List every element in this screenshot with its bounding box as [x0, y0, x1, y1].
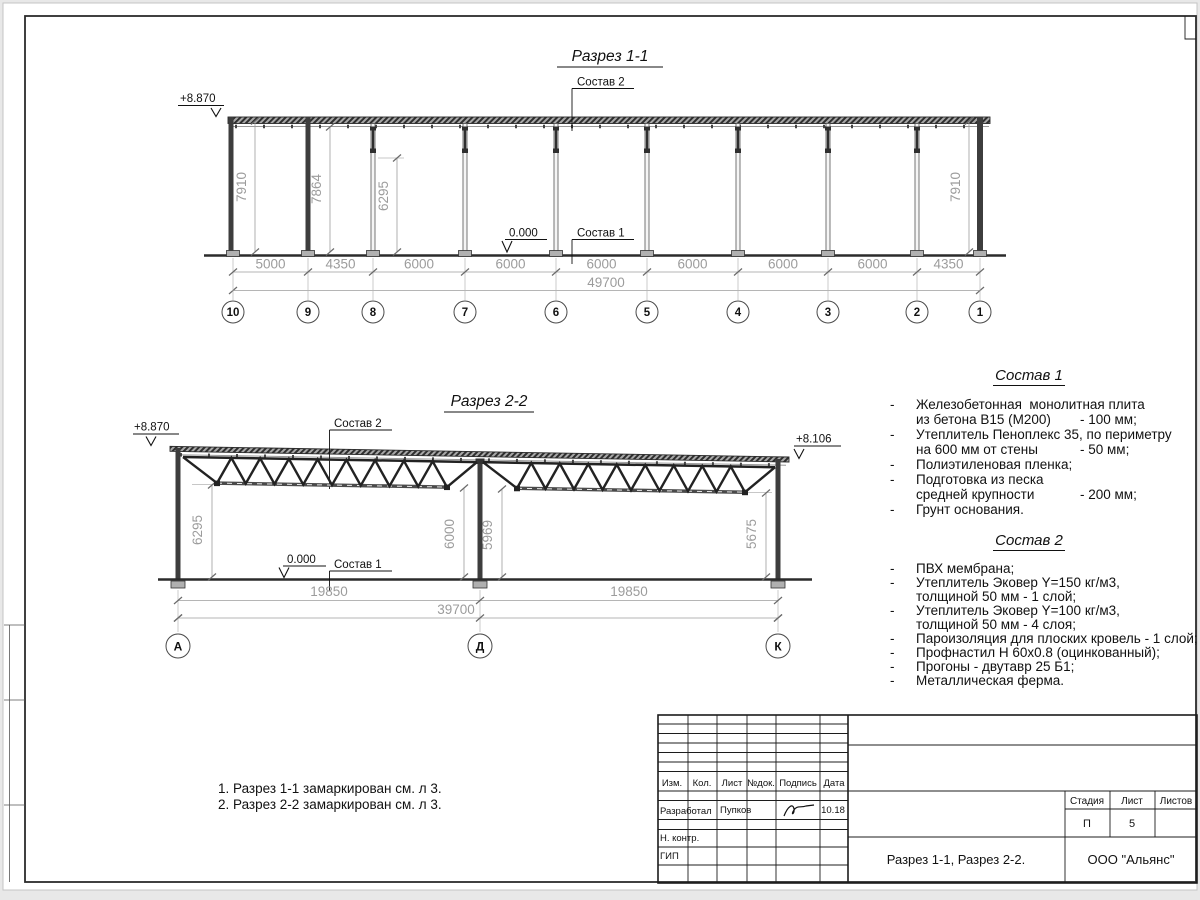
- dimension-text: 6000: [857, 257, 887, 272]
- foundation-pad: [171, 581, 185, 588]
- axis-label: 3: [825, 307, 831, 319]
- spec-text: Грунт основания.: [916, 502, 1024, 517]
- spec-text: Утеплитель Эковер Y=100 кг/м3,: [916, 604, 1120, 618]
- spec-text: ПВХ мембрана;: [916, 562, 1014, 576]
- spec-list-row: толщиной 50 мм - 4 слоя;: [870, 618, 1188, 632]
- connector-pad: [735, 127, 741, 131]
- column-top-connector: [372, 130, 374, 149]
- column-axis-10: [229, 117, 234, 255]
- spec-list-row: - Утеплитель Пеноплекс 35, по периметру: [870, 427, 1188, 442]
- elevation-value: +8.870: [134, 422, 170, 434]
- connector-pad: [644, 127, 650, 131]
- axis-label: 8: [370, 307, 377, 319]
- column-top-connector: [737, 130, 739, 149]
- connector-pad: [825, 149, 831, 154]
- tb-sheet-value: 5: [1129, 818, 1135, 830]
- sostav2-label: Состав 2: [334, 418, 382, 430]
- foundation-pad: [550, 251, 563, 257]
- tb-stage-label: Стадия: [1070, 796, 1104, 807]
- sostav1-label: Состав 1: [577, 228, 625, 240]
- spec-sostav-1: Состав 1 - Железобетонная монолитная пли…: [870, 367, 1188, 517]
- bullet: -: [890, 604, 895, 618]
- spec-text: Железобетонная монолитная плита: [916, 397, 1145, 412]
- column-axis-1: [977, 117, 983, 255]
- column-axis-a: [176, 448, 181, 579]
- axis-label: А: [174, 640, 183, 654]
- bullet: -: [890, 427, 895, 442]
- axis-label: К: [774, 640, 782, 654]
- tb-header-podpis: Подпись: [779, 778, 817, 789]
- dim-19850-right: 19850: [610, 584, 648, 599]
- spec-value: - 50 мм;: [1080, 442, 1129, 457]
- svg-text:6295: 6295: [190, 515, 205, 545]
- spec-list-row: - Металлическая ферма.: [870, 674, 1188, 688]
- column-top-connector: [555, 130, 557, 149]
- spec-value: - 100 мм;: [1080, 412, 1137, 427]
- connector-pad: [825, 127, 831, 131]
- foundation-pad: [822, 251, 835, 257]
- foundation-pad: [641, 251, 654, 257]
- tb-sheet-label: Лист: [1121, 796, 1143, 807]
- bullet: -: [890, 562, 895, 576]
- spec-text: Металлическая ферма.: [916, 674, 1064, 688]
- svg-text:6000: 6000: [442, 519, 457, 549]
- spec-text: средней крупности: [916, 487, 1034, 502]
- spec-text: Утеплитель Пеноплекс 35, по периметру: [916, 427, 1172, 442]
- connector-pad: [462, 149, 468, 154]
- spec-list-row: - Подготовка из песка: [870, 472, 1188, 487]
- spec-text: Утеплитель Эковер Y=150 кг/м3,: [916, 576, 1120, 590]
- zero-value: 0.000: [509, 228, 538, 240]
- spec-text: на 600 мм от стены: [916, 442, 1038, 457]
- tb-header-izm: Изм.: [662, 778, 682, 789]
- bullet: -: [890, 576, 895, 590]
- foundation-pad: [367, 251, 380, 257]
- dimension-text: 4350: [933, 257, 963, 272]
- spec-text: Подготовка из песка: [916, 472, 1044, 487]
- dimension-text: 6000: [768, 257, 798, 272]
- section-1-1-title: Разрез 1-1: [572, 48, 649, 65]
- spec1-heading: Состав 1: [870, 367, 1188, 384]
- spec-text: толщиной 50 мм - 1 слой;: [916, 590, 1076, 604]
- tb-header-ndok: №док.: [747, 778, 775, 789]
- foundation-pad: [227, 251, 240, 257]
- spec-list-row: толщиной 50 мм - 1 слой;: [870, 590, 1188, 604]
- column-top-connector: [646, 130, 648, 149]
- axis-label: 7: [462, 307, 468, 319]
- connector-pad: [914, 149, 920, 154]
- axis-label: 1: [977, 307, 984, 319]
- bullet: -: [890, 397, 895, 412]
- bullet: -: [890, 457, 895, 472]
- spec-list-row: - Профнастил Н 60х0.8 (оцинкованный);: [870, 646, 1188, 660]
- spec-text: Профнастил Н 60х0.8 (оцинкованный);: [916, 646, 1160, 660]
- spec-text: Полиэтиленовая пленка;: [916, 457, 1072, 472]
- svg-text:7864: 7864: [309, 173, 324, 204]
- spec-text: из бетона В15 (М200): [916, 412, 1051, 427]
- spec-list-row: - Полиэтиленовая пленка;: [870, 457, 1188, 472]
- tb-company: ООО "Альянс": [1088, 852, 1175, 867]
- tb-gip-label: ГИП: [660, 851, 679, 862]
- section-2-2-title: Разрез 2-2: [451, 393, 528, 410]
- zero-value: 0.000: [287, 554, 316, 566]
- spec-list-row: - Утеплитель Эковер Y=100 кг/м3,: [870, 604, 1188, 618]
- spec-list-row: - Грунт основания.: [870, 502, 1188, 517]
- svg-text:5675: 5675: [744, 519, 759, 549]
- spec-sostav-2: Состав 2 - ПВХ мембрана; - Утеплитель Эк…: [870, 532, 1188, 688]
- dimension-text: 6000: [677, 257, 707, 272]
- dim-19850-left: 19850: [310, 584, 348, 599]
- foundation-pad: [302, 251, 315, 257]
- dim-total-49700: 49700: [587, 275, 625, 290]
- axis-label: 2: [914, 307, 920, 319]
- tb-header-data: Дата: [823, 778, 845, 789]
- tb-header-kol: Кол.: [693, 778, 712, 789]
- dim-total-39700: 39700: [437, 602, 475, 617]
- drawing-sheet-page: Разрез 1-1 +8.870 Состав 2 Состав 1: [0, 0, 1200, 900]
- spec-list-row: - Пароизоляция для плоских кровель - 1 с…: [870, 632, 1188, 646]
- spec-value: - 200 мм;: [1080, 487, 1137, 502]
- foundation-pad: [473, 581, 487, 588]
- tb-developed-date: 10.18: [821, 805, 845, 816]
- elevation-value: +8.870: [180, 93, 216, 105]
- axis-label: 10: [227, 307, 240, 319]
- spec-list-row: - Прогоны - двутавр 25 Б1;: [870, 660, 1188, 674]
- note-1: 1. Разрез 1-1 замаркирован см. л 3.: [218, 781, 442, 797]
- sostav1-label: Состав 1: [334, 559, 382, 571]
- spec-text: толщиной 50 мм - 4 слоя;: [916, 618, 1076, 632]
- svg-text:7910: 7910: [948, 172, 963, 202]
- bullet: -: [890, 502, 895, 517]
- svg-text:6295: 6295: [376, 181, 391, 211]
- bullet: -: [890, 472, 895, 487]
- svg-text:7910: 7910: [234, 172, 249, 202]
- roof-slab-1-1: [228, 117, 990, 124]
- column-top-connector: [916, 130, 918, 149]
- foundation-pad: [974, 251, 987, 257]
- tb-developed-label: Разработал: [660, 806, 712, 817]
- column-top-connector: [464, 130, 466, 149]
- spec-list-row: - Железобетонная монолитная плита: [870, 397, 1188, 412]
- spec1-list: - Железобетонная монолитная плита из бет…: [870, 397, 1188, 517]
- tb-ncontrol-label: Н. контр.: [660, 833, 699, 844]
- dimension-text: 6000: [495, 257, 525, 272]
- bullet: -: [890, 646, 895, 660]
- spec-list-row: из бетона В15 (М200) - 100 мм;: [870, 412, 1188, 427]
- spec-list-row: средней крупности - 200 мм;: [870, 487, 1188, 502]
- column-top-connector: [827, 130, 829, 149]
- connector-pad: [553, 149, 559, 154]
- dimension-text: 6000: [586, 257, 616, 272]
- connector-pad: [914, 127, 920, 131]
- tb-sheets-label: Листов: [1160, 796, 1193, 807]
- foundation-pad: [459, 251, 472, 257]
- drawing-notes: 1. Разрез 1-1 замаркирован см. л 3. 2. Р…: [218, 781, 442, 812]
- connector-pad: [462, 127, 468, 131]
- bullet: -: [890, 660, 895, 674]
- tb-stage-value: П: [1083, 818, 1091, 830]
- axis-label: 6: [553, 307, 559, 319]
- connector-pad: [370, 127, 376, 131]
- column-axis-k: [776, 459, 781, 579]
- connector-pad: [553, 127, 559, 131]
- foundation-pad: [911, 251, 924, 257]
- bullet: -: [890, 674, 895, 688]
- connector-pad: [644, 149, 650, 154]
- dimension-text: 6000: [404, 257, 434, 272]
- note-2: 2. Разрез 2-2 замаркирован см. л 3.: [218, 797, 442, 813]
- spec-list-row: - Утеплитель Эковер Y=150 кг/м3,: [870, 576, 1188, 590]
- spec-list-row: - ПВХ мембрана;: [870, 562, 1188, 576]
- spec-list-row: на 600 мм от стены - 50 мм;: [870, 442, 1188, 457]
- axis-label: 4: [735, 307, 742, 319]
- sostav2-label: Состав 2: [577, 77, 625, 89]
- tb-developed-name: Пупков: [720, 805, 751, 816]
- axis-label: Д: [476, 640, 485, 654]
- tb-doc-title: Разрез 1-1, Разрез 2-2.: [887, 852, 1025, 867]
- tb-header-list: Лист: [722, 778, 743, 789]
- svg-text:5969: 5969: [480, 520, 495, 550]
- connector-pad: [735, 149, 741, 154]
- spec-text: Пароизоляция для плоских кровель - 1 сло…: [916, 632, 1198, 646]
- spec2-list: - ПВХ мембрана; - Утеплитель Эковер Y=15…: [870, 562, 1188, 688]
- foundation-pad: [732, 251, 745, 257]
- dimension-text: 4350: [325, 257, 355, 272]
- connector-pad: [370, 149, 376, 154]
- axis-label: 5: [644, 307, 651, 319]
- elevation-value: +8.106: [796, 434, 832, 446]
- bullet: -: [890, 632, 895, 646]
- axis-label: 9: [305, 307, 311, 319]
- spec-text: Прогоны - двутавр 25 Б1;: [916, 660, 1074, 674]
- spec2-heading: Состав 2: [870, 532, 1188, 549]
- foundation-pad: [771, 581, 785, 588]
- dimension-text: 5000: [255, 257, 285, 272]
